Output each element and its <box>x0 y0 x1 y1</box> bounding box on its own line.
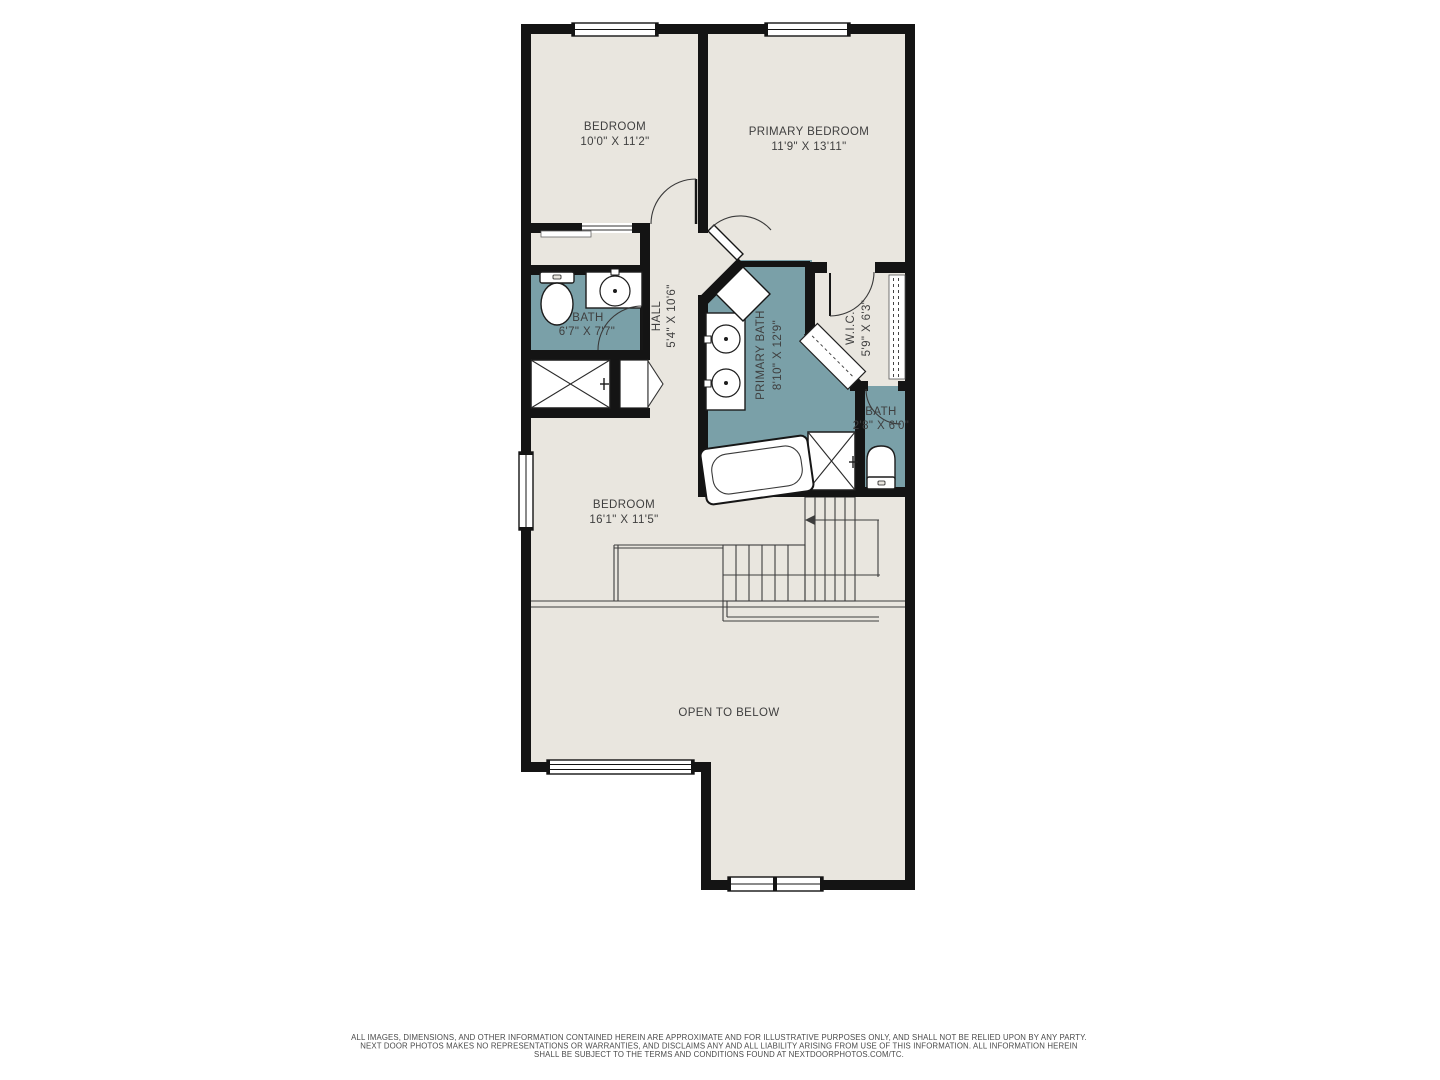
primary-vanity <box>704 313 745 410</box>
bedroom3-label: BEDROOM <box>593 499 655 511</box>
wic-shelf-strip <box>889 275 905 379</box>
window-bedroom3 <box>519 452 533 530</box>
primary-bath-label: PRIMARY BATH <box>755 310 767 400</box>
wc-toilet <box>867 446 895 489</box>
primary-bath-dims: 8'10" X 12'9" <box>772 320 784 390</box>
hall-label: HALL <box>651 301 663 332</box>
sink-vanity <box>586 269 642 308</box>
floor-plan-page: BEDROOM 10'0" X 11'2" PRIMARY BEDROOM 11… <box>0 0 1440 1080</box>
closet-shelf <box>541 231 591 237</box>
water-closet-label: BATH <box>865 406 896 418</box>
primary-bedroom-label: PRIMARY BEDROOM <box>749 126 870 138</box>
linen-closet <box>620 360 648 408</box>
bedroom2-dims: 10'0" X 11'2" <box>580 136 649 148</box>
open-to-below-label: OPEN TO BELOW <box>678 707 779 719</box>
wic-label: W.I.C. <box>845 311 857 345</box>
disclaimer-line-3: SHALL BE SUBJECT TO THE TERMS AND CONDIT… <box>534 1050 904 1059</box>
window-open-below-left <box>547 760 694 774</box>
shower-tub <box>531 360 610 408</box>
primary-shower <box>808 432 858 490</box>
disclaimer: ALL IMAGES, DIMENSIONS, AND OTHER INFORM… <box>351 1033 1087 1059</box>
window-bedroom2 <box>572 23 658 36</box>
wic-dims: 5'9" X 6'3" <box>861 300 873 357</box>
toilet <box>540 272 574 325</box>
hall-bath-label: BATH <box>572 312 603 324</box>
bedroom3-dims: 16'1" X 11'5" <box>589 514 658 526</box>
hall-bath-dims: 6'7" X 7'7" <box>559 326 616 338</box>
primary-bedroom-dims: 11'9" X 13'11" <box>771 141 846 153</box>
floor-plan-drawing: BEDROOM 10'0" X 11'2" PRIMARY BEDROOM 11… <box>0 0 1440 1080</box>
bedroom2-label: BEDROOM <box>584 121 646 133</box>
water-closet-dims: 2'8" X 6'0" <box>853 420 910 432</box>
window-open-below-bottom <box>728 877 823 891</box>
window-primary-bedroom <box>765 23 850 36</box>
hall-dims: 5'4" X 10'6" <box>666 284 678 347</box>
